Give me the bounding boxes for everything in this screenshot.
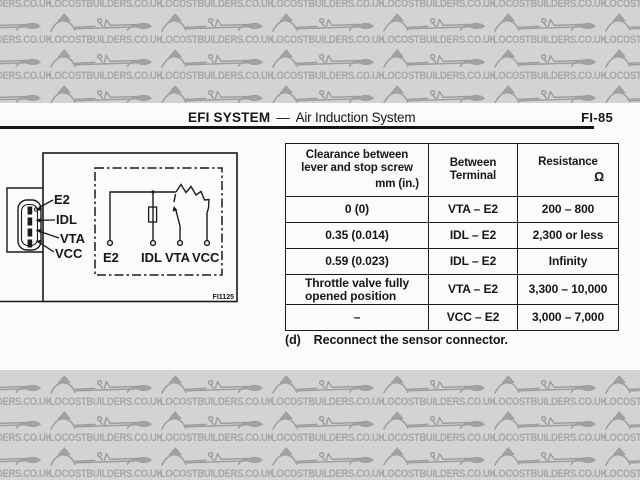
watermark-text: LOCOSTBUILDERS.CO.UK — [493, 432, 588, 445]
step-note: (d) Reconnect the sensor connector. — [285, 333, 508, 347]
watermark-unit: LOCOSTBUILDERS.CO.UK — [382, 84, 493, 103]
watermark-unit: LOCOSTBUILDERS.CO.UK — [271, 446, 382, 480]
locost-car-logo-icon — [271, 84, 379, 103]
watermark-text: LOCOSTBUILDERS.CO.UK — [49, 70, 144, 83]
watermark-text: LOCOSTBUILDERS.CO.UK — [271, 432, 366, 445]
terminal-cell: IDL – E2 — [429, 223, 518, 249]
watermark-unit: LOCOSTBUILDERS.CO.UK — [493, 446, 604, 480]
watermark-unit: LOCOSTBUILDERS.CO.UK — [604, 84, 640, 103]
table-header-row: Clearance between lever and stop screw m… — [286, 144, 619, 197]
clearance-cell: 0.59 (0.023) — [286, 249, 429, 275]
watermark-text: LOCOSTBUILDERS.CO.UK — [604, 396, 640, 409]
watermark-unit: LOCOSTBUILDERS.CO.UK — [271, 48, 382, 84]
locost-car-logo-icon — [382, 84, 490, 103]
locost-car-logo-icon — [604, 12, 640, 34]
watermark-unit: LOCOSTBUILDERS.CO.UK — [382, 410, 493, 446]
watermark-unit: LOCOSTBUILDERS.CO.UK — [604, 48, 640, 84]
header-rule — [0, 126, 594, 129]
watermark-unit: LOCOSTBUILDERS.CO.UK — [382, 446, 493, 480]
watermark-text: LOCOSTBUILDERS.CO.UK — [160, 70, 255, 83]
resistance-cell: Infinity — [518, 249, 619, 275]
locost-car-logo-icon — [49, 84, 157, 103]
col-header-resistance-unit: Ω — [522, 171, 614, 185]
locost-car-logo-icon — [49, 12, 157, 34]
locost-car-logo-icon — [160, 410, 268, 432]
watermark-unit: LOCOSTBUILDERS.CO.UK — [271, 374, 382, 410]
terminal-label-vcc: VCC — [192, 250, 220, 265]
watermark-unit: LOCOSTBUILDERS.CO.UK — [382, 374, 493, 410]
watermark-unit: LOCOSTBUILDERS.CO.UK — [0, 0, 49, 12]
locost-car-logo-icon — [493, 12, 601, 34]
col-header-resistance: Resistance Ω — [518, 144, 619, 197]
pin-label-vcc: VCC — [55, 246, 83, 261]
watermark-text: LOCOSTBUILDERS.CO.UK — [604, 0, 640, 11]
locost-car-logo-icon — [49, 374, 157, 396]
watermark-text: LOCOSTBUILDERS.CO.UK — [49, 0, 144, 11]
watermark-unit: LOCOSTBUILDERS.CO.UK — [382, 0, 493, 12]
watermark-unit: LOCOSTBUILDERS.CO.UK — [160, 410, 271, 446]
watermark-text: LOCOSTBUILDERS.CO.UK — [49, 432, 144, 445]
locost-car-logo-icon — [0, 84, 46, 103]
locost-car-logo-icon — [382, 12, 490, 34]
resistance-spec-table: Clearance between lever and stop screw m… — [285, 143, 619, 331]
watermark-unit: LOCOSTBUILDERS.CO.UK — [49, 374, 160, 410]
watermark-band-top: LOCOSTBUILDERS.CO.UKLOCOSTBUILDERS.CO.UK… — [0, 0, 640, 103]
watermark-unit: LOCOSTBUILDERS.CO.UK — [604, 0, 640, 12]
watermark-text: LOCOSTBUILDERS.CO.UK — [0, 396, 33, 409]
locost-car-logo-icon — [0, 374, 46, 396]
watermark-unit: LOCOSTBUILDERS.CO.UK — [160, 446, 271, 480]
terminal-cell: IDL – E2 — [429, 249, 518, 275]
locost-car-logo-icon — [493, 84, 601, 103]
watermark-pattern: LOCOSTBUILDERS.CO.UKLOCOSTBUILDERS.CO.UK… — [0, 370, 640, 480]
watermark-unit: LOCOSTBUILDERS.CO.UK — [0, 48, 49, 84]
col-header-clearance-line2: lever and stop screw — [290, 162, 424, 176]
watermark-text: LOCOSTBUILDERS.CO.UK — [604, 432, 640, 445]
watermark-text: LOCOSTBUILDERS.CO.UK — [160, 34, 255, 47]
resistance-cell: 2,300 or less — [518, 223, 619, 249]
watermark-unit: LOCOSTBUILDERS.CO.UK — [382, 12, 493, 48]
watermark-unit: LOCOSTBUILDERS.CO.UK — [382, 48, 493, 84]
watermark-text: LOCOSTBUILDERS.CO.UK — [604, 34, 640, 47]
watermark-unit: LOCOSTBUILDERS.CO.UK — [49, 84, 160, 103]
subsection-title: Air Induction System — [296, 110, 416, 125]
terminal-cell: VTA – E2 — [429, 197, 518, 223]
watermark-unit: LOCOSTBUILDERS.CO.UK — [271, 410, 382, 446]
watermark-unit: LOCOSTBUILDERS.CO.UK — [160, 84, 271, 103]
col-header-resistance-line1: Resistance — [522, 156, 614, 170]
table-row: Throttle valve fully opened position VTA… — [286, 275, 619, 305]
watermark-text: LOCOSTBUILDERS.CO.UK — [382, 34, 477, 47]
locost-car-logo-icon — [604, 48, 640, 70]
watermark-unit: LOCOSTBUILDERS.CO.UK — [49, 446, 160, 480]
locost-car-logo-icon — [493, 48, 601, 70]
watermark-text: LOCOSTBUILDERS.CO.UK — [604, 468, 640, 480]
step-text: Reconnect the sensor connector. — [314, 333, 508, 347]
watermark-text: LOCOSTBUILDERS.CO.UK — [49, 370, 144, 373]
col-header-clearance-unit: mm (in.) — [290, 178, 424, 192]
watermark-text: LOCOSTBUILDERS.CO.UK — [493, 34, 588, 47]
clearance-cell: 0.35 (0.014) — [286, 223, 429, 249]
watermark-unit: LOCOSTBUILDERS.CO.UK — [493, 84, 604, 103]
locost-car-logo-icon — [382, 48, 490, 70]
terminal-label-vta: VTA — [165, 250, 191, 265]
page-header: EFI SYSTEM—Air Induction System — [188, 110, 415, 125]
watermark-unit: LOCOSTBUILDERS.CO.UK — [271, 12, 382, 48]
watermark-unit: LOCOSTBUILDERS.CO.UK — [160, 0, 271, 12]
watermark-text: LOCOSTBUILDERS.CO.UK — [493, 0, 588, 11]
watermark-text: LOCOSTBUILDERS.CO.UK — [0, 0, 33, 11]
figure-code: FI1125 — [213, 294, 235, 301]
locost-car-logo-icon — [0, 12, 46, 34]
watermark-text: LOCOSTBUILDERS.CO.UK — [0, 34, 33, 47]
terminal-label-e2: E2 — [103, 250, 119, 265]
watermark-row: LOCOSTBUILDERS.CO.UKLOCOSTBUILDERS.CO.UK… — [0, 84, 640, 103]
watermark-text: LOCOSTBUILDERS.CO.UK — [382, 0, 477, 11]
watermark-unit: LOCOSTBUILDERS.CO.UK — [604, 446, 640, 480]
locost-car-logo-icon — [382, 410, 490, 432]
locost-car-logo-icon — [493, 446, 601, 468]
resistance-cell: 3,000 – 7,000 — [518, 305, 619, 331]
watermark-text: LOCOSTBUILDERS.CO.UK — [271, 468, 366, 480]
watermark-unit: LOCOSTBUILDERS.CO.UK — [493, 0, 604, 12]
watermark-text: LOCOSTBUILDERS.CO.UK — [160, 432, 255, 445]
watermark-row: LOCOSTBUILDERS.CO.UKLOCOSTBUILDERS.CO.UK… — [0, 12, 640, 48]
watermark-text: LOCOSTBUILDERS.CO.UK — [493, 70, 588, 83]
section-title: EFI SYSTEM — [188, 110, 270, 125]
locost-car-logo-icon — [604, 410, 640, 432]
clearance-cell: – — [286, 305, 429, 331]
locost-car-logo-icon — [604, 446, 640, 468]
locost-car-logo-icon — [160, 446, 268, 468]
watermark-row: LOCOSTBUILDERS.CO.UKLOCOSTBUILDERS.CO.UK… — [0, 410, 640, 446]
watermark-text: LOCOSTBUILDERS.CO.UK — [271, 34, 366, 47]
watermark-text: LOCOSTBUILDERS.CO.UK — [49, 34, 144, 47]
page-number: FI-85 — [581, 110, 613, 125]
locost-car-logo-icon — [49, 446, 157, 468]
watermark-text: LOCOSTBUILDERS.CO.UK — [49, 396, 144, 409]
watermark-text: LOCOSTBUILDERS.CO.UK — [271, 370, 366, 373]
watermark-unit: LOCOSTBUILDERS.CO.UK — [0, 446, 49, 480]
locost-car-logo-icon — [604, 84, 640, 103]
col-header-terminal: Between Terminal — [429, 144, 518, 197]
watermark-text: LOCOSTBUILDERS.CO.UK — [160, 396, 255, 409]
locost-car-logo-icon — [0, 48, 46, 70]
watermark-text: LOCOSTBUILDERS.CO.UK — [382, 396, 477, 409]
locost-car-logo-icon — [0, 446, 46, 468]
locost-car-logo-icon — [160, 12, 268, 34]
pin-label-e2: E2 — [54, 192, 70, 207]
watermark-row: LOCOSTBUILDERS.CO.UKLOCOSTBUILDERS.CO.UK… — [0, 446, 640, 480]
watermark-unit: LOCOSTBUILDERS.CO.UK — [604, 12, 640, 48]
watermark-text: LOCOSTBUILDERS.CO.UK — [382, 370, 477, 373]
watermark-text: LOCOSTBUILDERS.CO.UK — [49, 468, 144, 480]
locost-car-logo-icon — [160, 84, 268, 103]
step-label: (d) — [285, 333, 301, 347]
watermark-text: LOCOSTBUILDERS.CO.UK — [160, 370, 255, 373]
locost-car-logo-icon — [382, 446, 490, 468]
throttle-sensor-figure: E2 IDL VTA VCC E2 IDL — [0, 150, 250, 310]
watermark-row: LOCOSTBUILDERS.CO.UKLOCOSTBUILDERS.CO.UK… — [0, 374, 640, 410]
table-row: 0.59 (0.023) IDL – E2 Infinity — [286, 249, 619, 275]
col-header-clearance-line1: Clearance between — [290, 149, 424, 163]
locost-car-logo-icon — [604, 374, 640, 396]
col-header-terminal-line1: Between — [433, 157, 513, 171]
watermark-unit: LOCOSTBUILDERS.CO.UK — [160, 48, 271, 84]
watermark-band-bottom: LOCOSTBUILDERS.CO.UKLOCOSTBUILDERS.CO.UK… — [0, 370, 640, 480]
locost-car-logo-icon — [271, 410, 379, 432]
table-row: 0 (0) VTA – E2 200 – 800 — [286, 197, 619, 223]
watermark-text: LOCOSTBUILDERS.CO.UK — [271, 0, 366, 11]
watermark-text: LOCOSTBUILDERS.CO.UK — [160, 468, 255, 480]
watermark-text: LOCOSTBUILDERS.CO.UK — [271, 396, 366, 409]
locost-car-logo-icon — [49, 48, 157, 70]
locost-car-logo-icon — [160, 48, 268, 70]
figure-frame — [0, 153, 237, 302]
locost-car-logo-icon — [493, 410, 601, 432]
watermark-unit: LOCOSTBUILDERS.CO.UK — [49, 0, 160, 12]
locost-car-logo-icon — [160, 374, 268, 396]
watermark-text: LOCOSTBUILDERS.CO.UK — [160, 0, 255, 11]
watermark-unit: LOCOSTBUILDERS.CO.UK — [271, 0, 382, 12]
watermark-unit: LOCOSTBUILDERS.CO.UK — [49, 12, 160, 48]
locost-car-logo-icon — [271, 446, 379, 468]
watermark-text: LOCOSTBUILDERS.CO.UK — [604, 70, 640, 83]
watermark-text: LOCOSTBUILDERS.CO.UK — [382, 432, 477, 445]
locost-car-logo-icon — [382, 374, 490, 396]
watermark-text: LOCOSTBUILDERS.CO.UK — [0, 70, 33, 83]
clearance-cell: Throttle valve fully opened position — [286, 275, 429, 305]
locost-car-logo-icon — [271, 12, 379, 34]
col-header-terminal-line2: Terminal — [433, 170, 513, 184]
watermark-unit: LOCOSTBUILDERS.CO.UK — [0, 374, 49, 410]
terminal-cell: VCC – E2 — [429, 305, 518, 331]
watermark-row: LOCOSTBUILDERS.CO.UKLOCOSTBUILDERS.CO.UK… — [0, 0, 640, 12]
locost-car-logo-icon — [0, 410, 46, 432]
locost-car-logo-icon — [49, 410, 157, 432]
watermark-text: LOCOSTBUILDERS.CO.UK — [604, 370, 640, 373]
watermark-unit: LOCOSTBUILDERS.CO.UK — [49, 410, 160, 446]
table-row: 0.35 (0.014) IDL – E2 2,300 or less — [286, 223, 619, 249]
document-content: EFI SYSTEM—Air Induction System FI-85 — [0, 103, 640, 370]
watermark-text: LOCOSTBUILDERS.CO.UK — [493, 396, 588, 409]
watermark-text: LOCOSTBUILDERS.CO.UK — [493, 370, 588, 373]
watermark-unit: LOCOSTBUILDERS.CO.UK — [0, 410, 49, 446]
watermark-text: LOCOSTBUILDERS.CO.UK — [382, 70, 477, 83]
pin-label-idl: IDL — [56, 212, 77, 227]
watermark-pattern: LOCOSTBUILDERS.CO.UKLOCOSTBUILDERS.CO.UK… — [0, 0, 640, 103]
watermark-text: LOCOSTBUILDERS.CO.UK — [493, 468, 588, 480]
watermark-unit: LOCOSTBUILDERS.CO.UK — [160, 374, 271, 410]
pin-label-vta: VTA — [60, 231, 86, 246]
resistance-cell: 200 – 800 — [518, 197, 619, 223]
clearance-cell: 0 (0) — [286, 197, 429, 223]
watermark-text: LOCOSTBUILDERS.CO.UK — [271, 70, 366, 83]
watermark-unit: LOCOSTBUILDERS.CO.UK — [0, 84, 49, 103]
watermark-unit: LOCOSTBUILDERS.CO.UK — [493, 410, 604, 446]
resistance-cell: 3,300 – 10,000 — [518, 275, 619, 305]
watermark-text: LOCOSTBUILDERS.CO.UK — [382, 468, 477, 480]
watermark-text: LOCOSTBUILDERS.CO.UK — [0, 432, 33, 445]
scanned-manual-page: LOCOSTBUILDERS.CO.UKLOCOSTBUILDERS.CO.UK… — [0, 0, 640, 480]
watermark-unit: LOCOSTBUILDERS.CO.UK — [604, 410, 640, 446]
watermark-unit: LOCOSTBUILDERS.CO.UK — [493, 12, 604, 48]
watermark-unit: LOCOSTBUILDERS.CO.UK — [493, 48, 604, 84]
locost-car-logo-icon — [271, 48, 379, 70]
watermark-text: LOCOSTBUILDERS.CO.UK — [0, 468, 33, 480]
watermark-unit: LOCOSTBUILDERS.CO.UK — [604, 374, 640, 410]
watermark-unit: LOCOSTBUILDERS.CO.UK — [271, 84, 382, 103]
locost-car-logo-icon — [493, 374, 601, 396]
watermark-unit: LOCOSTBUILDERS.CO.UK — [160, 12, 271, 48]
terminal-cell: VTA – E2 — [429, 275, 518, 305]
locost-car-logo-icon — [271, 374, 379, 396]
watermark-unit: LOCOSTBUILDERS.CO.UK — [0, 12, 49, 48]
watermark-unit: LOCOSTBUILDERS.CO.UK — [49, 48, 160, 84]
header-separator: — — [276, 110, 289, 125]
watermark-unit: LOCOSTBUILDERS.CO.UK — [493, 374, 604, 410]
watermark-text: LOCOSTBUILDERS.CO.UK — [0, 370, 33, 373]
col-header-clearance: Clearance between lever and stop screw m… — [286, 144, 429, 197]
watermark-row: LOCOSTBUILDERS.CO.UKLOCOSTBUILDERS.CO.UK… — [0, 48, 640, 84]
terminal-label-idl: IDL — [141, 250, 162, 265]
table-row: – VCC – E2 3,000 – 7,000 — [286, 305, 619, 331]
